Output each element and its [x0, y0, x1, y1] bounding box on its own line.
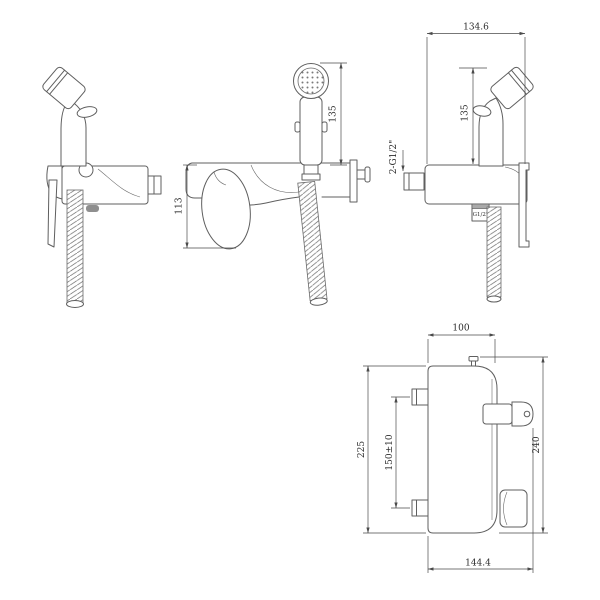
- spray-face-nozzles: [298, 68, 324, 94]
- drawing-canvas: 113 135: [0, 0, 600, 600]
- mounting-plate: [428, 366, 497, 533]
- hose-end-cap: [487, 296, 501, 302]
- holder-plan: [500, 490, 527, 527]
- sprayer-trigger: [76, 105, 98, 119]
- sprayer-nub-right: [322, 122, 327, 132]
- mounting-tab-top: [412, 389, 428, 405]
- sprayer-body-front: [300, 97, 322, 165]
- dim-label-144-4: 144.4: [465, 559, 491, 569]
- dim-label-150: 150±10: [385, 434, 395, 470]
- technical-drawing-page: 113 135: [0, 0, 600, 600]
- lever-handle-side: [48, 180, 57, 247]
- inlet-fitting: [404, 173, 424, 190]
- dimension-150: 150±10: [385, 397, 410, 508]
- mixer-body-rear: [425, 165, 527, 204]
- shower-hose-side: [67, 190, 84, 308]
- shower-hose-front: [298, 181, 328, 306]
- sprayer-nub-left: [295, 122, 300, 132]
- hose-nut-front: [302, 174, 320, 180]
- sprayer-head: [41, 66, 87, 111]
- thread-label-g12: G1/2": [473, 212, 489, 218]
- dim-label-100: 100: [452, 324, 469, 334]
- hose-nut-band: [472, 204, 489, 209]
- sprayer-neck: [304, 165, 318, 174]
- view-plan-bottom: 100 150±10 225 240 144.4: [357, 324, 548, 574]
- hand-sprayer-side: [41, 66, 98, 166]
- top-knob: [469, 357, 478, 367]
- dim-label-240: 240: [532, 436, 542, 453]
- view-front-middle: 113 135: [175, 63, 371, 306]
- lever-plan: [483, 402, 533, 426]
- dim-label-225: 225: [357, 441, 367, 458]
- inlet-thread-callout: 2-G1/2": [389, 140, 403, 175]
- hose-connection-rear: G1/2": [472, 204, 501, 302]
- view-side-left: [41, 66, 161, 308]
- wall-plate-front: [350, 160, 357, 202]
- dim-label-135-rear: 135: [461, 104, 471, 121]
- aerator-slot: [86, 205, 99, 212]
- thread-label-2-g12: 2-G1/2": [389, 140, 399, 175]
- wall-nipple-cap: [365, 167, 370, 182]
- dim-label-113: 113: [175, 197, 185, 214]
- shower-hose-rear: [487, 207, 501, 297]
- body-contour-front: [251, 165, 299, 193]
- lever-handle-front: [197, 166, 254, 251]
- dim-label-134-6: 134.6: [463, 23, 489, 33]
- dim-label-135-front: 135: [329, 105, 339, 122]
- view-rear-right: G1/2" 134.6 135 2-G1/2": [389, 23, 535, 303]
- mounting-tab-bottom: [412, 500, 428, 516]
- hand-sprayer-rear: [472, 66, 535, 166]
